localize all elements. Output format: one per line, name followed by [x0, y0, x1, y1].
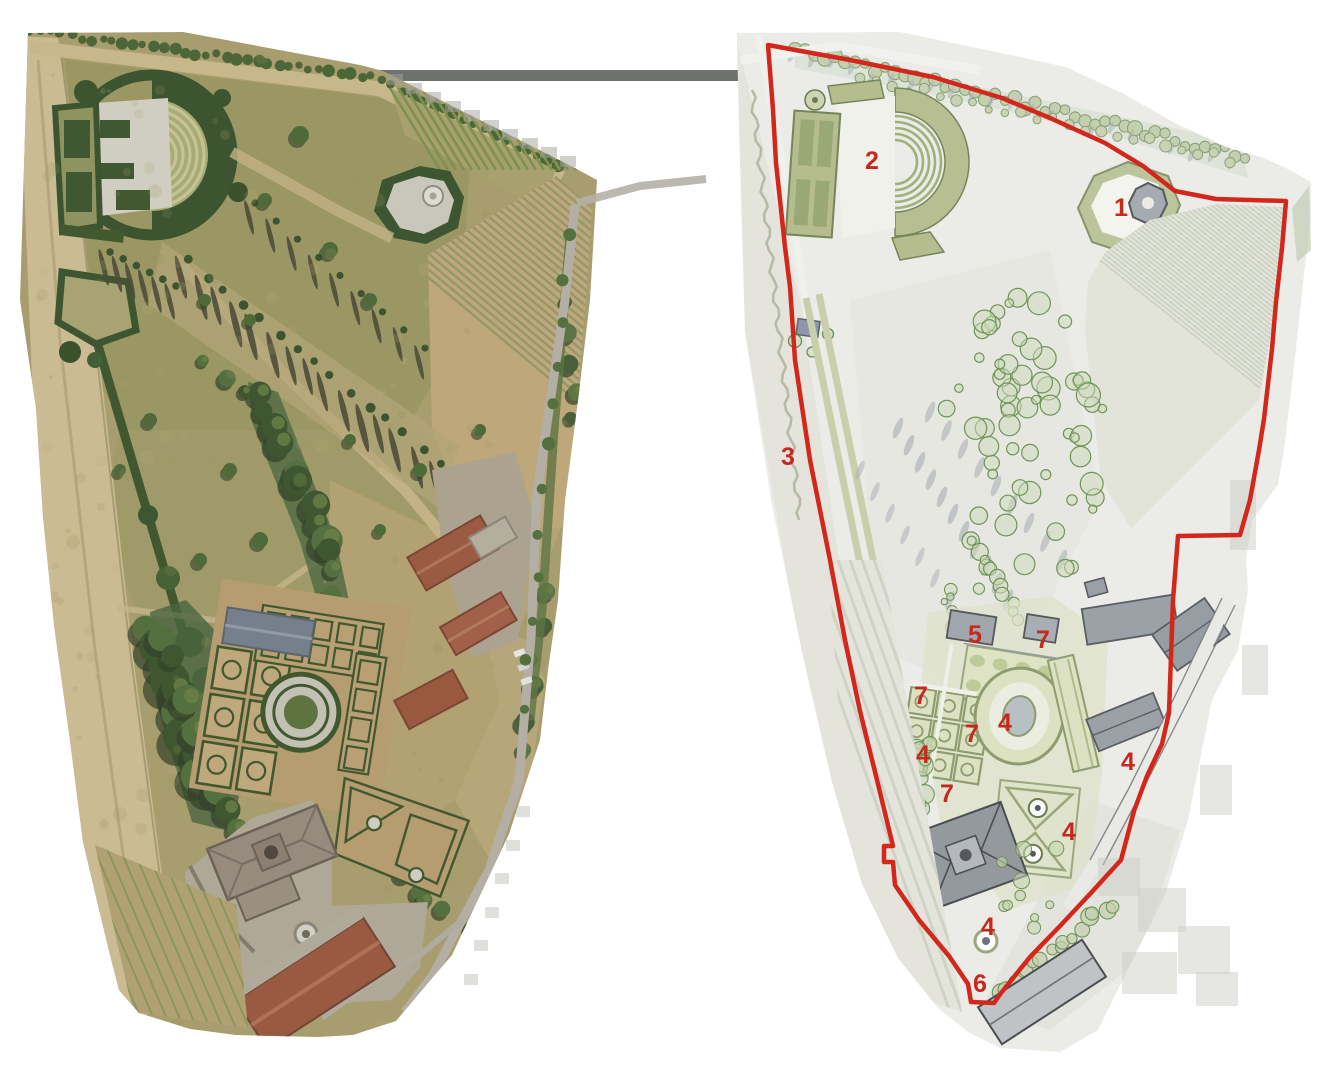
svg-text:7: 7 — [914, 682, 928, 710]
svg-text:4: 4 — [916, 741, 930, 769]
svg-text:5: 5 — [968, 621, 982, 649]
svg-text:4: 4 — [1121, 748, 1135, 776]
svg-text:4: 4 — [998, 709, 1012, 737]
svg-text:7: 7 — [965, 720, 979, 748]
svg-text:4: 4 — [981, 913, 995, 941]
svg-text:1: 1 — [1114, 194, 1128, 222]
svg-text:2: 2 — [865, 147, 879, 175]
svg-text:3: 3 — [781, 443, 795, 471]
svg-text:4: 4 — [1062, 818, 1076, 846]
svg-text:6: 6 — [973, 970, 987, 998]
svg-text:7: 7 — [1036, 626, 1050, 654]
svg-text:7: 7 — [940, 780, 954, 808]
